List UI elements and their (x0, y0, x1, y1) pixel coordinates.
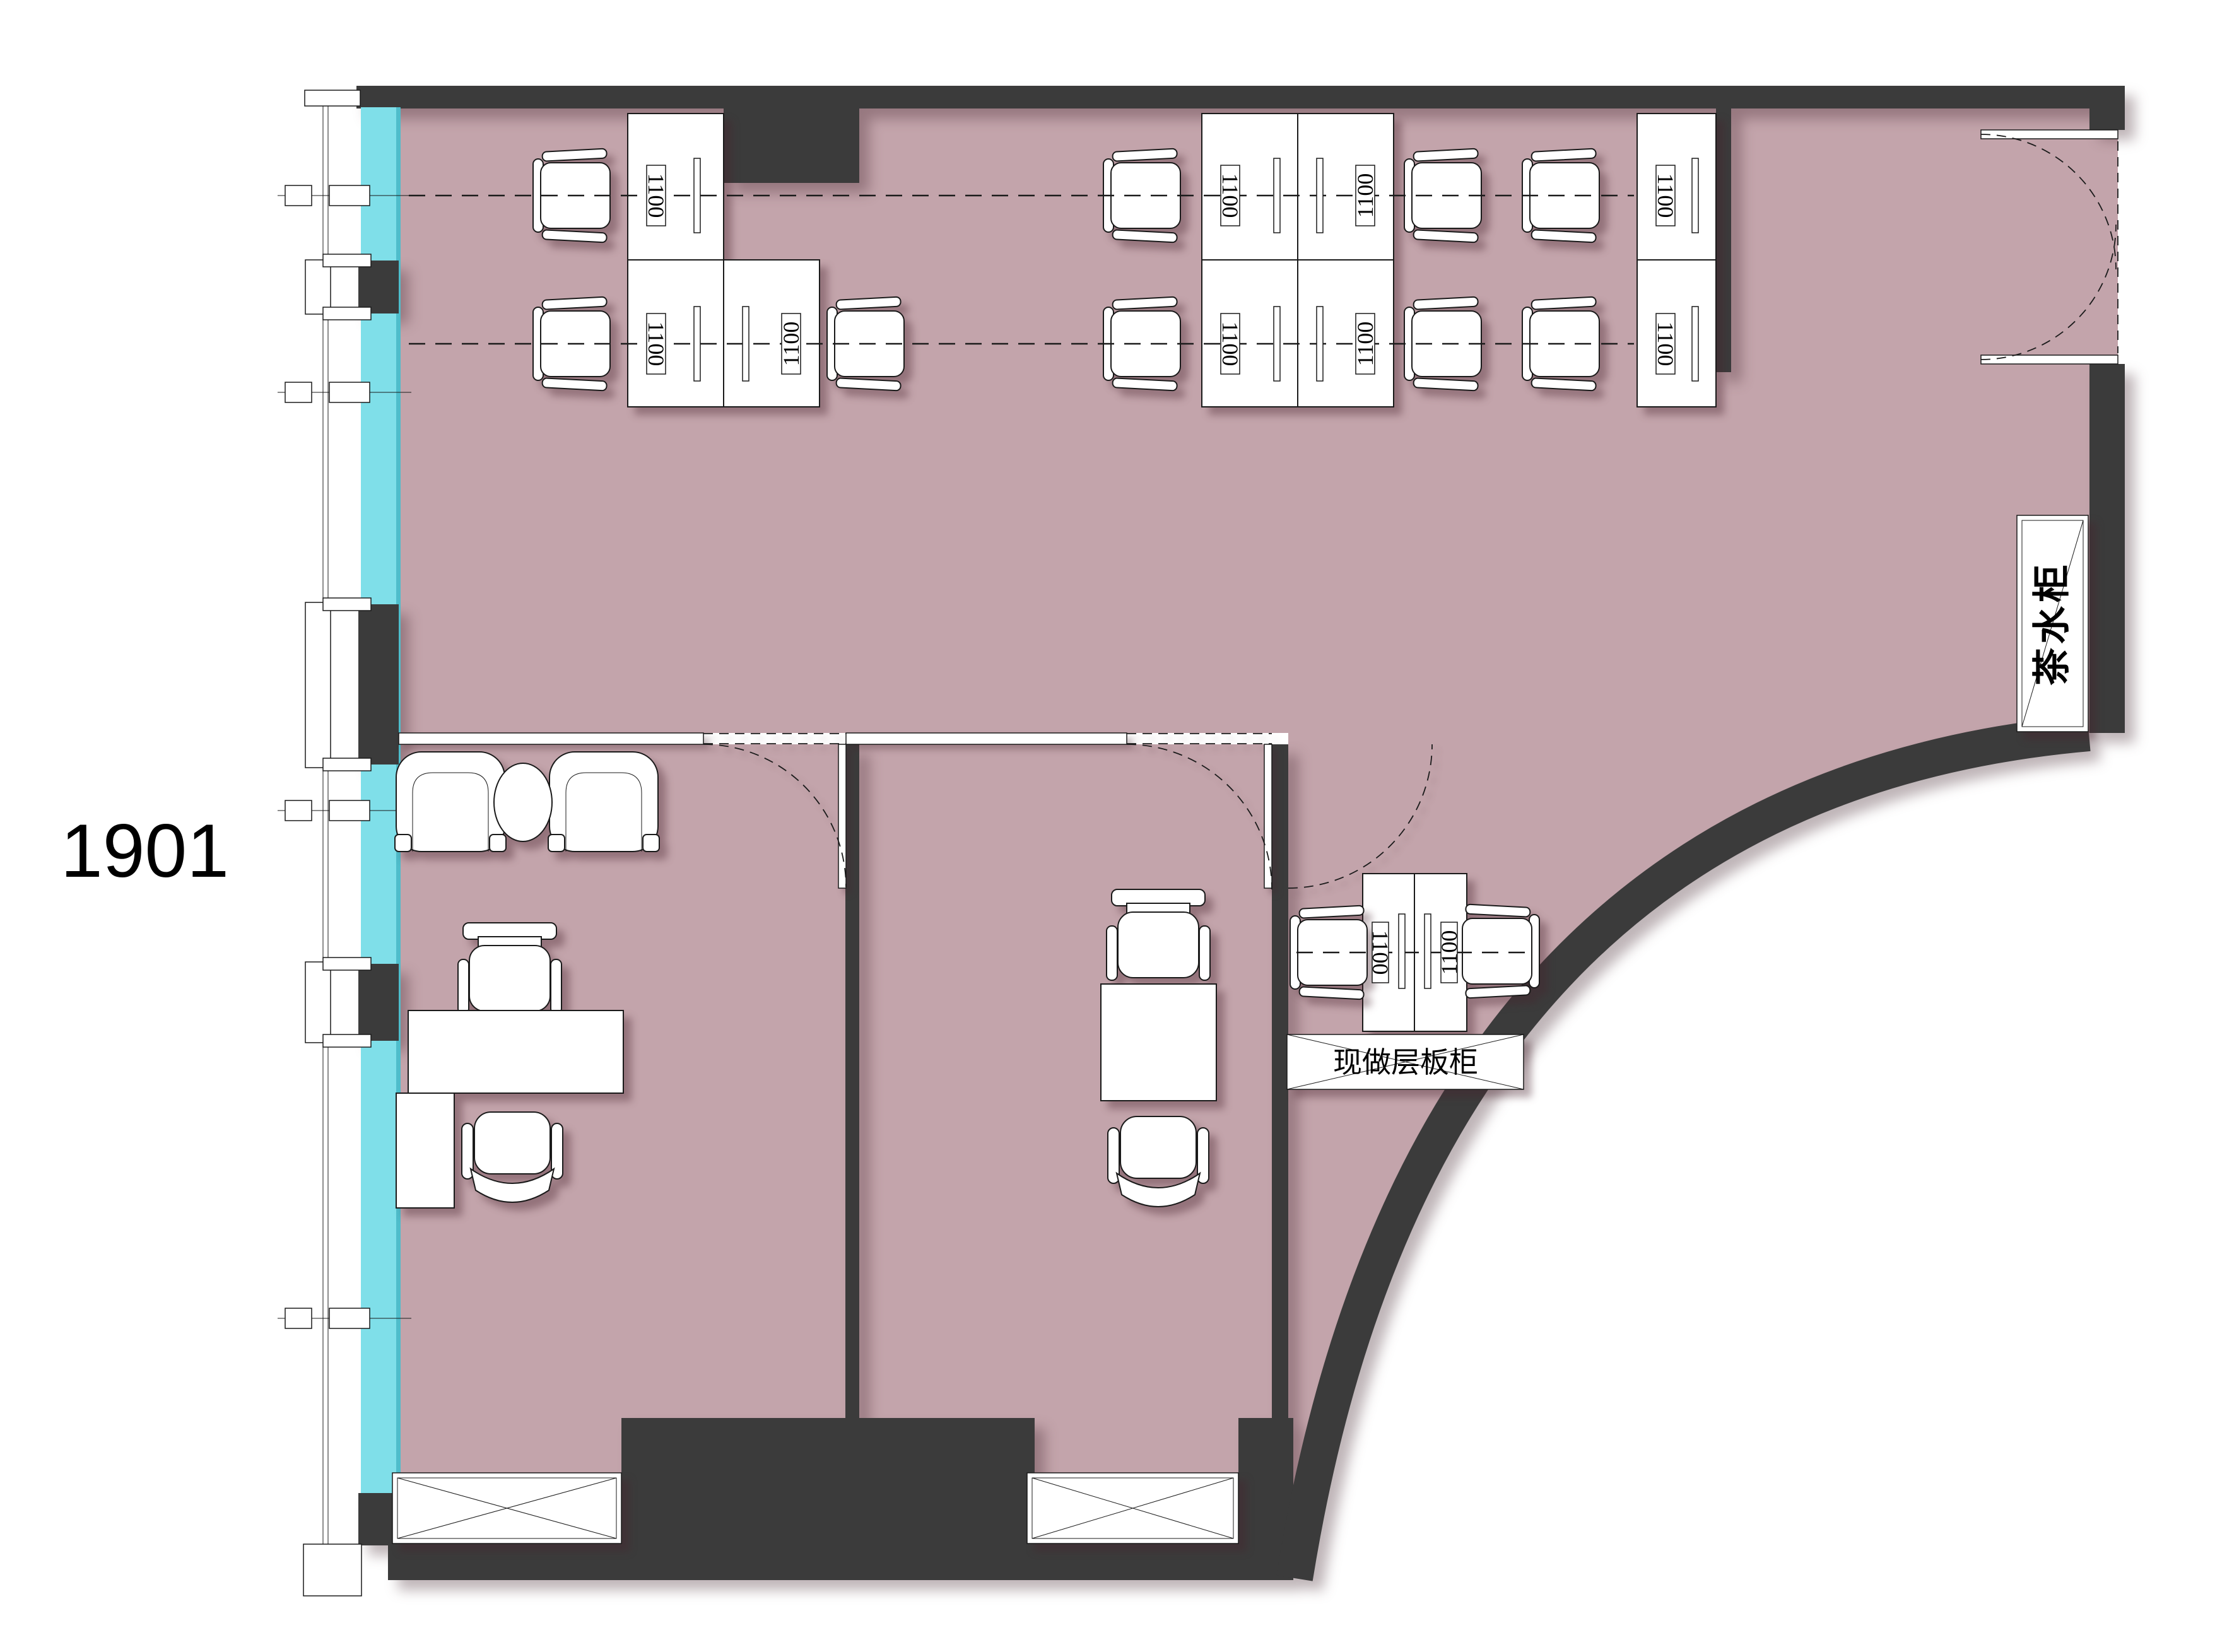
monitor (694, 158, 700, 233)
desk (1202, 260, 1298, 407)
right-wall-upper (2089, 108, 2125, 130)
office1-floor (401, 744, 845, 1473)
tea-cabinet-label: 茶水柜 (2030, 561, 2074, 686)
pier-box-2 (305, 602, 331, 768)
desk-label: 1100 (779, 313, 804, 374)
floor-plan: 1100 1100 1100 1100 1100 1100 1100 1100 (0, 0, 2227, 1652)
monitor (1399, 914, 1405, 988)
svg-text:1100: 1100 (1218, 322, 1243, 366)
unit-number: 1901 (61, 809, 229, 893)
entry-door-leaf-bottom (1981, 355, 2118, 364)
desk (628, 260, 724, 407)
desk-label: 1100 (643, 165, 669, 226)
glazing-pier-cover-2 (358, 604, 399, 764)
monitor (743, 307, 749, 381)
office2-desk (1101, 984, 1216, 1101)
svg-text:1100: 1100 (643, 322, 669, 366)
monitor (1692, 307, 1698, 381)
monitor (1692, 158, 1698, 233)
svg-text:1100: 1100 (1437, 930, 1462, 975)
pier-cap (323, 758, 371, 771)
monitor (1274, 158, 1280, 233)
tea-cabinet: 茶水柜 (2017, 515, 2088, 732)
svg-text:1100: 1100 (779, 322, 804, 366)
desk-label: 1100 (1353, 165, 1378, 226)
lounge-chair (395, 752, 506, 852)
frame-bottom-cap (303, 1544, 361, 1596)
desk-label: 1100 (1218, 165, 1243, 226)
door-leaf-office2 (1264, 744, 1272, 888)
desk (724, 260, 820, 407)
executive-chair (1108, 1116, 1209, 1207)
right-wall (2089, 364, 2125, 733)
desk-label: 1100 (1653, 165, 1678, 226)
guest-chair (458, 923, 561, 1014)
pier-cap (323, 307, 371, 320)
bottom-wall-band (388, 1544, 1293, 1580)
office1-cabinet (392, 1473, 621, 1544)
shelf-cabinet-label: 现做层板柜 (1333, 1045, 1478, 1079)
office1-desk (408, 1011, 623, 1093)
svg-text:1100: 1100 (1368, 930, 1393, 975)
svg-text:1100: 1100 (1653, 322, 1678, 366)
svg-text:1100: 1100 (1353, 322, 1378, 366)
top-wall-notch (724, 108, 859, 183)
pier-box-3 (305, 962, 331, 1043)
partition-segment-2 (846, 733, 1127, 744)
desk (1298, 114, 1394, 260)
pier-cap (323, 1034, 371, 1047)
pier-box-1 (305, 260, 331, 314)
monitor (694, 307, 700, 381)
svg-text:1100: 1100 (1653, 173, 1678, 218)
monitor (1425, 914, 1431, 988)
partition-segment-1 (399, 733, 703, 744)
pier-cap (323, 254, 371, 267)
monitor (1317, 158, 1323, 233)
svg-text:1100: 1100 (1353, 173, 1378, 218)
frame-top-cap (305, 90, 360, 106)
pier-cap (323, 958, 371, 970)
shelf-cabinet: 现做层板柜 (1287, 1034, 1524, 1089)
top-wall (356, 86, 2125, 108)
desk-label: 1100 (1368, 922, 1393, 983)
monitor (1317, 307, 1323, 381)
entry-door-leaf-top (1981, 130, 2118, 139)
lounge-chair (548, 752, 659, 852)
monitor (1274, 307, 1280, 381)
glazing-pier-cover-1 (358, 261, 399, 313)
glazing-pier-cover-3 (358, 964, 399, 1041)
desk-label: 1100 (1437, 922, 1462, 983)
desk-label: 1100 (1353, 313, 1378, 374)
svg-text:1100: 1100 (643, 173, 669, 218)
office2-furniture (1101, 889, 1216, 1207)
office1-desk-return (396, 1093, 454, 1208)
curtain-wall (278, 90, 411, 1596)
desk-label: 1100 (643, 313, 669, 374)
cluster-c-screen-wall (1716, 108, 1731, 372)
desk-label: 1100 (1218, 313, 1243, 374)
desk (628, 114, 724, 260)
desk (1298, 260, 1394, 407)
guest-chair (1107, 889, 1210, 980)
floor-plan-page: 1100 1100 1100 1100 1100 1100 1100 1100 (0, 0, 2227, 1652)
pier-cap (323, 598, 371, 611)
desk-label: 1100 (1653, 313, 1678, 374)
desk (1202, 114, 1298, 260)
office2-cabinet (1027, 1473, 1238, 1544)
office2-floor (859, 744, 1272, 1473)
executive-chair (462, 1112, 563, 1202)
svg-text:1100: 1100 (1218, 173, 1243, 218)
door-leaf-office1 (838, 744, 846, 888)
side-table (494, 763, 552, 841)
